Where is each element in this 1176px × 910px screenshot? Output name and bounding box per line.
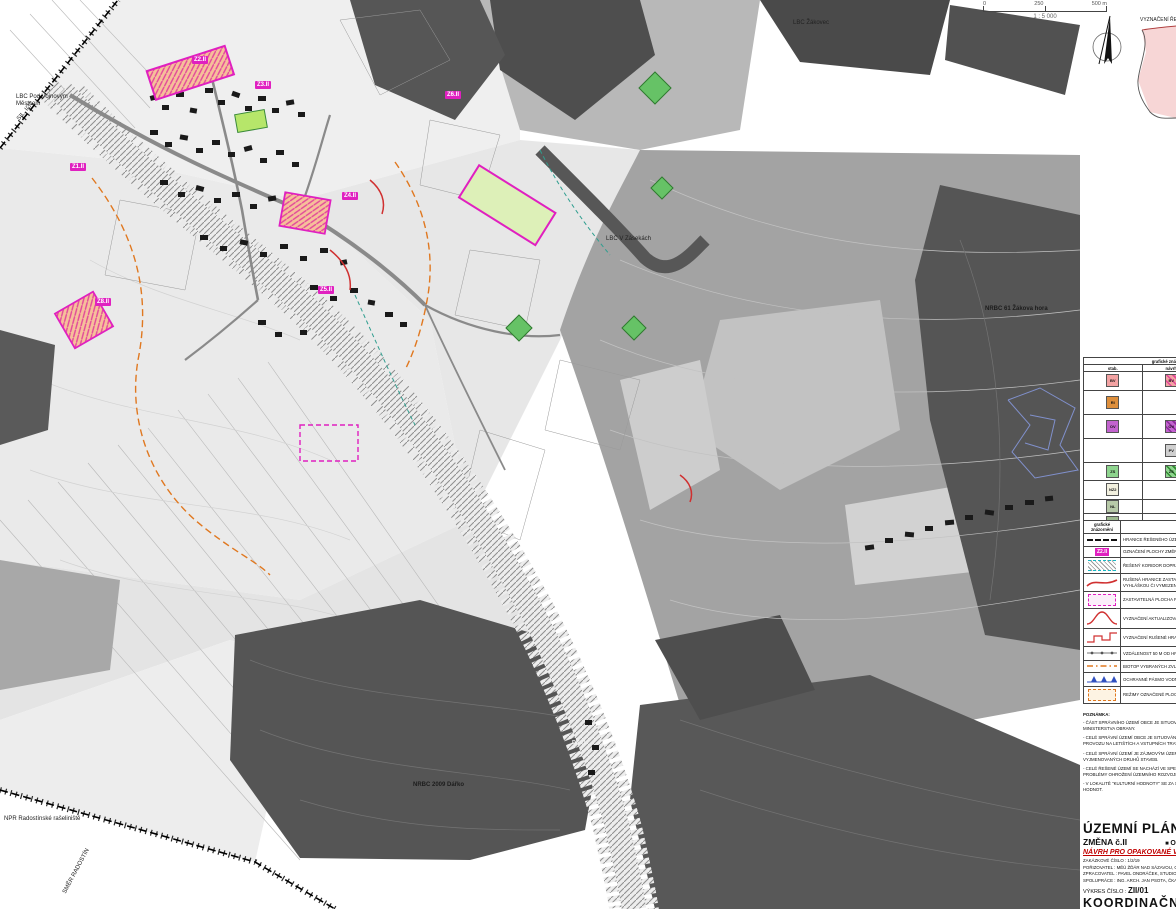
landuse-row: PV PLOCHY VEŘEJNÝCH PROSTRANSTVÍ- VEŘEJN… — [1084, 438, 1176, 462]
territorial-study-icon — [1088, 689, 1116, 701]
map-label-nrbc-darko: NRBC 2009 Dářko — [413, 782, 464, 789]
legend-symbols-table: grafické znázornění popis HRANICE ŘEŠENÉ… — [1083, 520, 1176, 704]
corridor-band-icon — [1088, 560, 1116, 571]
swatch-ri-stab: RI — [1106, 396, 1119, 409]
map-label-npr: NPR Radostínské rašeliniště — [4, 816, 80, 823]
note-item: - CELÉ SPRÁVNÍ ÚZEMÍ OBCE JE SITUOVÁNO V… — [1083, 735, 1176, 747]
map-label-corridor: DK01 — [572, 740, 586, 746]
zone-tag-z2: Z2.II — [192, 56, 208, 64]
zone-tag-z7: Z8.II — [95, 298, 111, 306]
legend-landuse-panel: grafické znázornění PLOCHY S ROZDÍLNÝM Z… — [1083, 357, 1176, 532]
landuse-row: ZS ZS PLOCHY ZELENĚ- SOUKROMÁ A VYHRAZEN… — [1084, 462, 1176, 481]
map-label-lbc-zakovec: LBC Žákovec — [793, 20, 829, 27]
map-label-lbc-zaseky: LBC V Zásekách — [606, 236, 651, 243]
landuse-row: BV BV PLOCHY BYDLENÍ- BYDLENÍ V RODINNÝC… — [1084, 372, 1176, 391]
plan-sheet: { "map": { "labels": { "lbc_pod": "LBC P… — [0, 0, 1176, 909]
plan-map-canvas — [0, 0, 1176, 909]
cancelled-boundary-icon — [1086, 575, 1118, 589]
note-item: - V LOKALITĚ "KULTURNÍ HODNOTY" SE ZA ST… — [1083, 781, 1176, 793]
change-number: ZMĚNA č.II — [1083, 837, 1127, 847]
symbols-header-desc: popis — [1121, 521, 1176, 534]
swatch-nz2-stab: NZ2 — [1106, 483, 1119, 496]
landuse-row: NZ2 PLOCHY ZEMĚDĚLSKÉ- TRVALÉ TRAVNÍ POR… — [1084, 481, 1176, 500]
map-label-nrbc-zakova: NRBC 61 Žákova hora — [985, 306, 1048, 313]
boundary-line-icon — [1087, 539, 1117, 541]
swatch-ov-stab: OV — [1106, 420, 1119, 433]
legend-subheader-stab: stab. — [1084, 365, 1143, 372]
bullet-label: O — [1165, 840, 1176, 847]
notes-title: POZNÁMKA: — [1083, 712, 1176, 718]
zone-tag-z5: Z5.II — [318, 286, 334, 294]
swatch-ov-navrh: OV — [1165, 420, 1176, 433]
notes-panel: POZNÁMKA: - ČÁST SPRÁVNÍHO ÚZEMÍ OBCE JE… — [1083, 712, 1176, 797]
swatch-bv-stab: BV — [1106, 374, 1119, 387]
zone-tag-z4: Z4.II — [342, 192, 358, 200]
swatch-nl-stab: NL — [1106, 500, 1119, 513]
scale-bar-line — [983, 6, 1107, 12]
scale-ratio: 1 : 5 000 — [983, 14, 1107, 20]
swatch-pv-navrh: PV — [1165, 444, 1176, 457]
swatch-bv-navrh: BV — [1165, 374, 1176, 387]
meta-acquirer: POŘIZOVATEL : MĚÚ ŽĎÁR NAD SÁZAVOU, ODBO… — [1083, 865, 1176, 872]
legend-landuse-table: grafické znázornění PLOCHY S ROZDÍLNÝM Z… — [1083, 357, 1176, 532]
zone-tag-z6: Z6.II — [445, 91, 461, 99]
biotope-line-icon — [1086, 662, 1118, 670]
drawing-number: ZII/01 — [1128, 886, 1148, 895]
meta-order-number: ZAKÁZKOVÉ ČÍSLO : 1/2/19 — [1083, 858, 1176, 865]
landuse-row: RI PLOCHY REKREACE- PLOCHY STAVEB PRO RO… — [1084, 390, 1176, 414]
phase-label: NÁVRH PRO OPAKOVANÉ VEŘEJNÉ PROJEDNÁNÍ — [1083, 849, 1176, 856]
legend-subheader-navrh: návrh — [1142, 365, 1176, 372]
swatch-zs-navrh: ZS — [1165, 465, 1176, 478]
swatch-zs-stab: ZS — [1106, 465, 1119, 478]
legend-header-graphic: grafické znázornění — [1084, 358, 1176, 365]
meta-cooperation: SPOLUPRÁCE : ING. ARCH. JAN PSOTA, ČKA 1… — [1083, 878, 1176, 885]
water-protection-icon — [1086, 674, 1118, 684]
builtup-boundary-icon — [1086, 610, 1118, 626]
scale-bar: 0 250 500 m 1 : 5 000 — [983, 6, 1107, 20]
cancelled-builtup-icon — [1086, 630, 1118, 644]
plan-title: ÚZEMNÍ PLÁN VOJNŮV MĚSTEC — [1083, 821, 1176, 836]
symbols-header-graphic: grafické znázornění — [1084, 521, 1121, 534]
inset-label: VYZNAČENÍ ŘEŠENÉHO ÚZEMÍ — [1140, 18, 1176, 24]
zone-tag-z3: Z3.II — [255, 81, 271, 89]
note-item: - CELÉ SPRÁVNÍ ÚZEMÍ JE ZÁJMOVÝM ÚZEMÍM … — [1083, 751, 1176, 763]
zone-tag-z1: Z1.II — [70, 163, 86, 171]
landuse-row: NL PLOCHY LESNÍ (NL) — [1084, 499, 1176, 513]
valid-plan-zone-icon — [1088, 594, 1116, 606]
note-item: - CELÉ ŘEŠENÉ ÚZEMÍ SE NACHÁZÍ VE SPECIF… — [1083, 766, 1176, 778]
title-block: ÚZEMNÍ PLÁN VOJNŮV MĚSTEC ZMĚNA č.II O N… — [1083, 821, 1176, 910]
forest-distance-icon — [1086, 648, 1118, 658]
landuse-row: OV OV PLOCHY OBČANSKÉHO VYBAVENÍ- VEŘEJN… — [1084, 414, 1176, 438]
drawing-name: KOORDINAČNÍ VÝKRES — [1083, 896, 1176, 910]
legend-symbols-panel: grafické znázornění popis HRANICE ŘEŠENÉ… — [1083, 520, 1176, 704]
zone-tag-icon: Z2.II — [1095, 548, 1109, 556]
meta-author: ZPRACOVATEL : PAVEL ONDRÁČEK, STUDIO-P, … — [1083, 871, 1176, 878]
drawing-number-label: VÝKRES ČÍSLO : — [1083, 889, 1126, 895]
note-item: - ČÁST SPRÁVNÍHO ÚZEMÍ OBCE JE SITUOVÁNA… — [1083, 720, 1176, 732]
